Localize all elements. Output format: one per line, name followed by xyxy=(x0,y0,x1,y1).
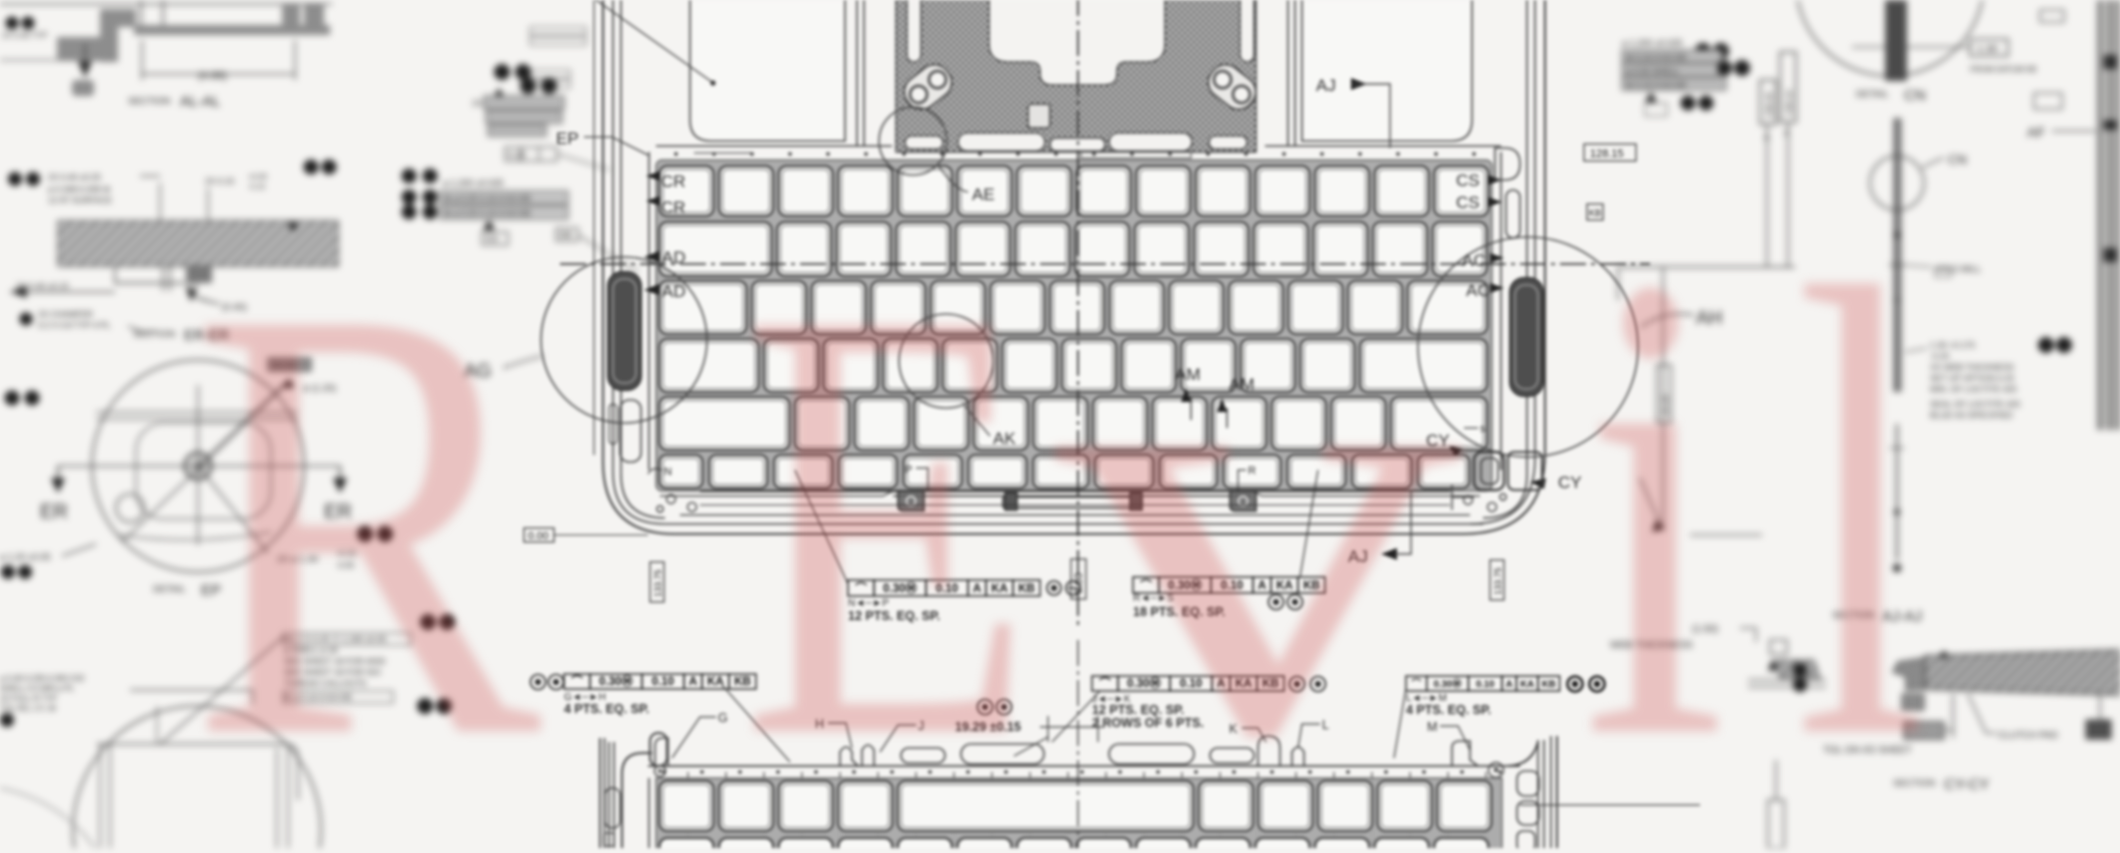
svg-text:l: l xyxy=(1795,156,1927,848)
svg-text:R: R xyxy=(190,179,544,848)
svg-text:E: E xyxy=(741,179,1035,848)
svg-text:v: v xyxy=(1055,179,1461,848)
svg-text:i: i xyxy=(1582,134,1727,848)
